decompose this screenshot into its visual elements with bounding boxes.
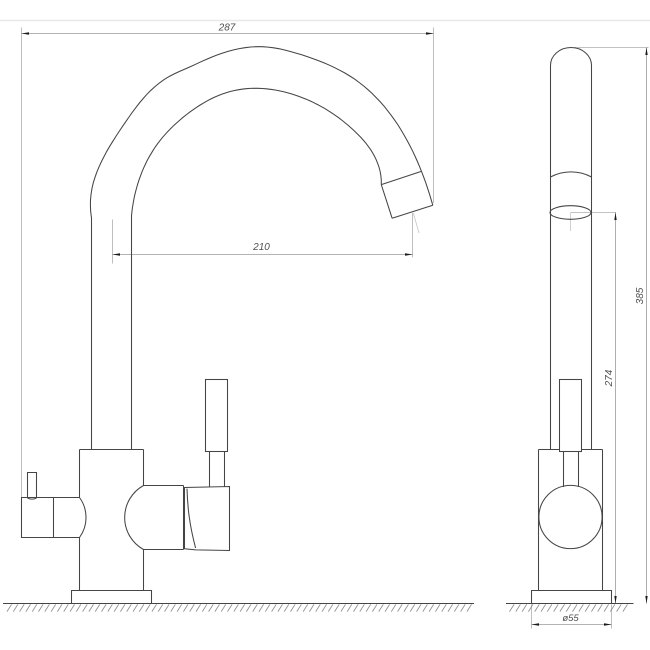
svg-text:385: 385 <box>635 287 646 304</box>
svg-text:210: 210 <box>252 242 270 253</box>
svg-text:287: 287 <box>218 23 236 34</box>
svg-text:274: 274 <box>604 369 615 387</box>
svg-text:ø55: ø55 <box>562 613 579 624</box>
